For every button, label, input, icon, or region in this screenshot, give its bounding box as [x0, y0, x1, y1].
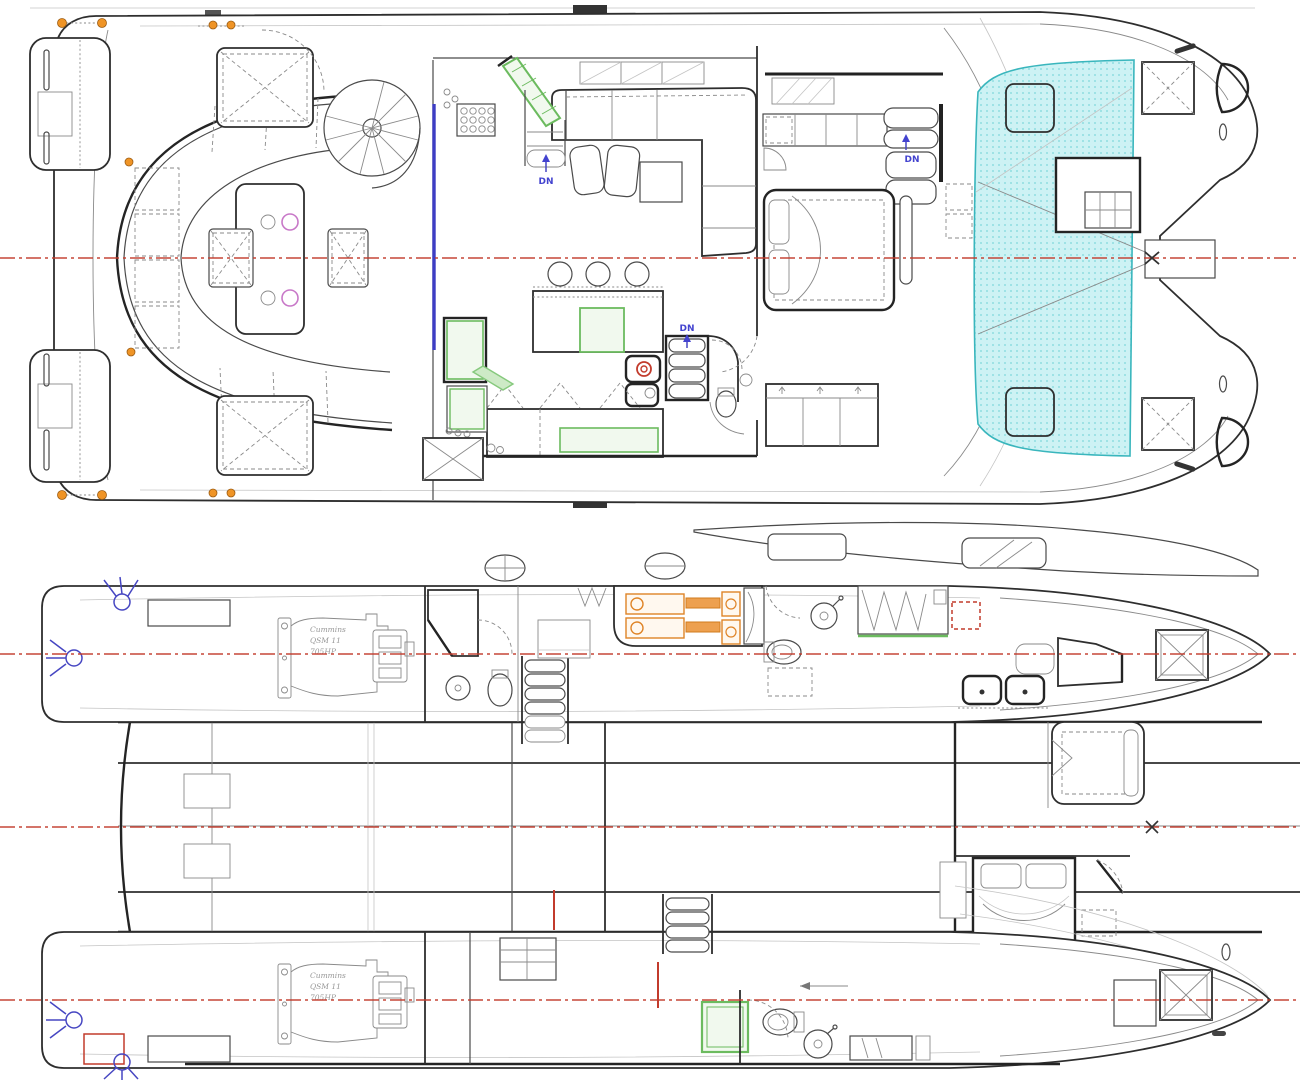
- platform-outline: [30, 38, 110, 170]
- pillow: [1124, 730, 1138, 796]
- master-steps: [884, 108, 938, 128]
- stair-tread: [666, 940, 709, 952]
- engine-model: QSM 11: [310, 982, 341, 991]
- master-dresser: [763, 114, 887, 146]
- stair-tread: [666, 926, 709, 938]
- washbasin: [446, 676, 470, 700]
- desk: [538, 620, 590, 658]
- wardrobe-port: [858, 586, 948, 636]
- crew-cabin: [614, 586, 764, 646]
- galley-sink: [626, 384, 658, 406]
- gate-hinge-dot: [58, 19, 67, 28]
- swim-platform-locker: [148, 1036, 230, 1062]
- island-appliance: [580, 308, 624, 352]
- bed-bench: [900, 196, 912, 284]
- gate-hinge-dot: [58, 491, 67, 500]
- down-label: DN: [679, 324, 694, 334]
- bar-stool: [548, 262, 572, 286]
- gate-hinge-dot: [98, 19, 107, 28]
- gearbox: [373, 630, 407, 682]
- vanity: [1016, 644, 1054, 674]
- down-label: DN: [904, 155, 919, 165]
- engine-mount: [278, 964, 291, 1044]
- gate-hinge-dot: [227, 21, 235, 29]
- stair-tread: [666, 912, 709, 924]
- partition-post: [939, 104, 943, 182]
- berth-fitting: [726, 599, 736, 609]
- toilet: [488, 674, 512, 706]
- profile-window: [962, 538, 1046, 568]
- counter-appliance: [560, 428, 658, 452]
- pillow: [769, 200, 789, 244]
- stair-tread: [525, 660, 565, 672]
- master-steps: [884, 130, 938, 148]
- stair-tread: [525, 716, 565, 728]
- coffee-table: [640, 162, 682, 202]
- salon-chair: [603, 144, 640, 197]
- berth-rail: [686, 598, 720, 608]
- stair-treads-port: [522, 656, 568, 744]
- berth-shelf: [184, 844, 230, 878]
- gate-hinge-dot: [127, 348, 135, 356]
- basin-drain: [1023, 690, 1028, 695]
- berth-fitting: [631, 622, 643, 634]
- pillow: [1026, 864, 1066, 888]
- ga-drawing: DN: [0, 0, 1300, 1080]
- berth-rail: [686, 622, 720, 632]
- washbasin: [811, 603, 837, 629]
- ga-canvas: DN: [0, 0, 1300, 1080]
- bar-stool: [586, 262, 610, 286]
- shower-green: [702, 1002, 748, 1052]
- stair-tread: [525, 730, 565, 742]
- gate-hinge-dot: [227, 489, 235, 497]
- toilet: [716, 391, 736, 417]
- berth-shelf: [184, 774, 230, 808]
- berth-fitting: [726, 627, 736, 637]
- gate-hinge-dot: [125, 158, 133, 166]
- master-chest: [766, 384, 878, 446]
- pillow: [769, 250, 789, 294]
- washbasin: [804, 1030, 832, 1058]
- wardrobe: [500, 938, 556, 980]
- stair-tread: [666, 898, 709, 910]
- engine-mount: [278, 618, 291, 698]
- stair-tread: [525, 688, 565, 700]
- wardrobe: [858, 586, 948, 634]
- stair-tread: [525, 674, 565, 686]
- gate-hinge-dot: [209, 21, 217, 29]
- guest-bed-port: [1048, 722, 1144, 808]
- cleat: [1212, 1031, 1226, 1036]
- stair-treads-starboard: [663, 894, 712, 954]
- galley-cabinet-face: [450, 389, 484, 429]
- engine-make: Cummins: [310, 625, 346, 634]
- engine-model: QSM 11: [310, 636, 341, 645]
- gate-hinge-dot: [98, 491, 107, 500]
- salon-chair: [569, 144, 605, 196]
- bench-locker: [850, 1036, 912, 1060]
- gearbox: [373, 976, 407, 1028]
- master-wardrobe: [772, 78, 834, 104]
- main-deck-plan: DN: [0, 5, 1300, 508]
- cooktop: [626, 356, 660, 382]
- berth-fitting: [631, 598, 643, 610]
- pillow: [981, 864, 1021, 888]
- engine-make: Cummins: [310, 971, 346, 980]
- bar-stool: [625, 262, 649, 286]
- profile-window: [768, 534, 846, 560]
- gate-hinge-dot: [209, 489, 217, 497]
- stair-tread: [525, 702, 565, 714]
- platform-outline: [30, 350, 110, 482]
- basin-drain: [980, 690, 985, 695]
- down-label: DN: [538, 177, 553, 187]
- swim-platform-locker: [148, 600, 230, 626]
- bowsprit-crossbeam: [1145, 240, 1215, 278]
- side-shelf: [940, 862, 966, 918]
- bench-end: [916, 1036, 930, 1060]
